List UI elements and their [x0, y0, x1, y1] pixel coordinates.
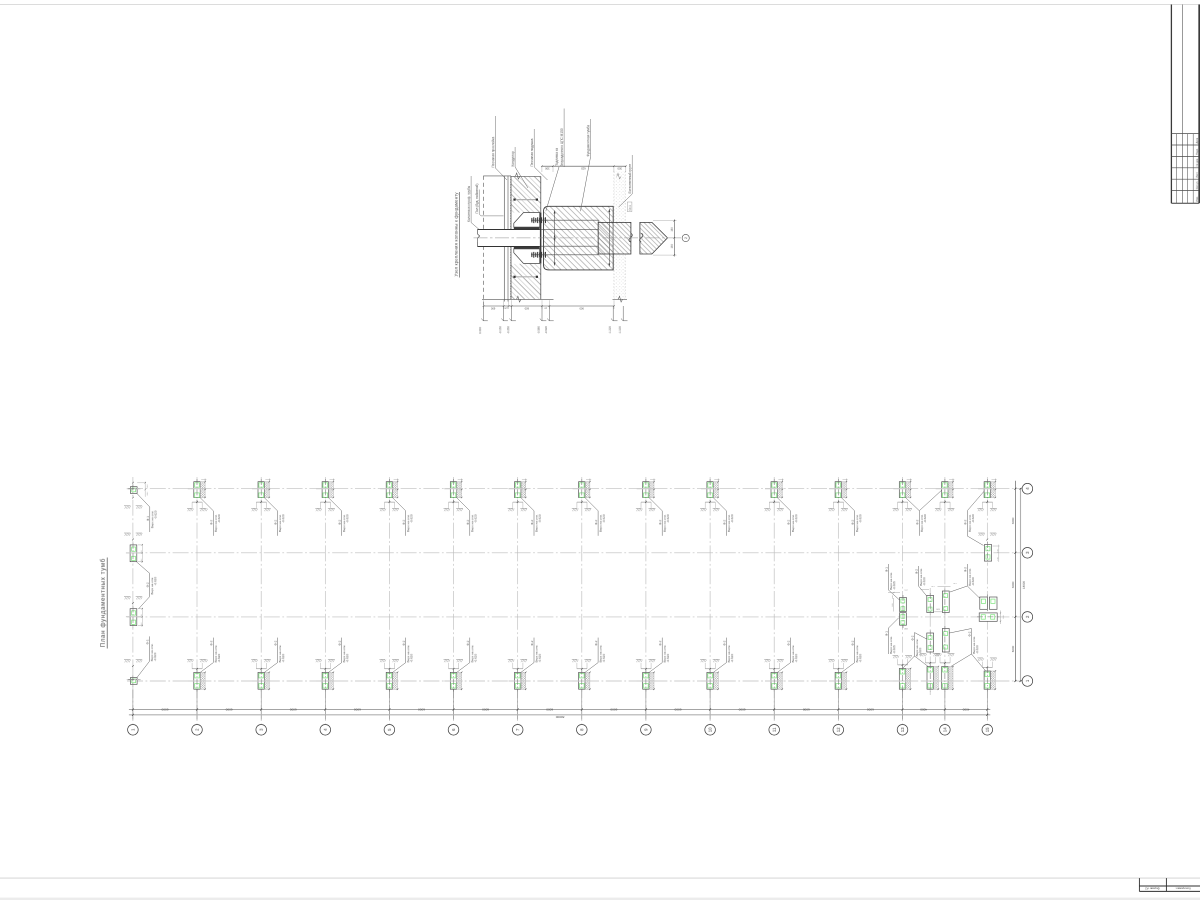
svg-text:6000: 6000: [289, 708, 296, 712]
svg-text:360: 360: [147, 491, 149, 495]
svg-text:Ф-2: Ф-2: [274, 520, 278, 525]
svg-text:Ф-2: Ф-2: [968, 631, 972, 636]
svg-text:№ док.: № док.: [1196, 158, 1199, 167]
svg-text:Дата: Дата: [1195, 137, 1199, 143]
svg-text:18000: 18000: [1022, 581, 1026, 589]
svg-text:4: 4: [1025, 487, 1030, 490]
svg-text:Ф-2: Ф-2: [851, 640, 855, 645]
svg-text:Ф-2: Ф-2: [722, 520, 726, 525]
svg-text:8: 8: [579, 728, 584, 731]
svg-text:Ф-2: Ф-2: [911, 635, 915, 640]
svg-text:4: 4: [323, 728, 328, 731]
svg-text:-0.620: -0.620: [666, 654, 670, 663]
svg-text:-0.620: -0.620: [474, 514, 478, 523]
svg-text:11: 11: [772, 727, 777, 732]
svg-text:300: 300: [545, 167, 550, 171]
svg-text:50: 50: [544, 307, 547, 309]
svg-text:-0.620: -0.620: [409, 514, 413, 523]
svg-text:3: 3: [1025, 551, 1030, 554]
svg-text:Ф-2: Ф-2: [594, 640, 598, 645]
svg-text:Песчаная подушка: Песчаная подушка: [530, 138, 534, 166]
svg-text:-0.620: -0.620: [971, 514, 975, 523]
svg-text:-0.620: -0.620: [281, 514, 285, 523]
svg-text:Фундаментная тумба: Фундаментная тумба: [586, 125, 590, 157]
svg-text:-0.605: -0.605: [892, 581, 896, 590]
svg-text:6000: 6000: [1011, 645, 1015, 652]
svg-text:-0.620: -0.620: [602, 654, 606, 663]
svg-text:280: 280: [903, 627, 907, 629]
svg-text:Подливка из: Подливка из: [555, 147, 559, 166]
svg-text:500: 500: [935, 608, 939, 610]
svg-text:Колонна из проф. трубы: Колонна из проф. трубы: [467, 185, 471, 222]
svg-text:Ф-2: Ф-2: [146, 582, 150, 587]
svg-text:6000: 6000: [1011, 581, 1015, 588]
svg-text:6000: 6000: [418, 708, 425, 712]
svg-text:6000: 6000: [803, 708, 810, 712]
svg-text:Ф-2: Ф-2: [338, 520, 342, 525]
svg-text:Ф-1: Ф-1: [146, 516, 150, 521]
svg-text:4000: 4000: [962, 708, 969, 712]
svg-text:6000: 6000: [354, 708, 361, 712]
svg-text:12: 12: [836, 727, 841, 732]
svg-text:-1.100: -1.100: [618, 326, 622, 334]
svg-text:10: 10: [708, 727, 713, 732]
svg-text:Ф-2: Ф-2: [338, 640, 342, 645]
svg-text:150: 150: [670, 227, 674, 232]
svg-text:Кондуктор: Кондуктор: [511, 151, 515, 166]
svg-text:-0.620: -0.620: [858, 654, 862, 663]
svg-text:1: 1: [1025, 679, 1030, 682]
svg-text:Копировал:: Копировал:: [1175, 886, 1190, 890]
svg-text:Формат А2: Формат А2: [1145, 886, 1160, 890]
svg-text:Ф-2: Ф-2: [530, 520, 534, 525]
svg-text:-0.620: -0.620: [409, 654, 413, 663]
svg-text:14: 14: [942, 727, 947, 732]
svg-text:Ф-2: Ф-2: [466, 520, 470, 525]
svg-text:Узел крепления колонны к фунда: Узел крепления колонны к фундаменту: [454, 192, 459, 277]
svg-text:-0.620: -0.620: [971, 577, 975, 586]
svg-text:6000: 6000: [1011, 517, 1015, 524]
svg-text:Ф-2: Ф-2: [787, 640, 791, 645]
svg-text:900: 900: [903, 588, 907, 590]
svg-text:Ф-2: Ф-2: [402, 520, 406, 525]
svg-text:Подп.: Подп.: [1195, 148, 1199, 155]
svg-text:Ф-2: Ф-2: [594, 520, 598, 525]
svg-text:13: 13: [900, 727, 905, 732]
svg-text:7: 7: [515, 728, 520, 731]
svg-text:-0.620: -0.620: [345, 654, 349, 663]
svg-text:Ф-2: Ф-2: [530, 640, 534, 645]
svg-text:Ф-2: Ф-2: [963, 519, 967, 524]
svg-text:2: 2: [195, 728, 200, 731]
svg-text:-0.580: -0.580: [537, 326, 541, 334]
svg-text:150: 150: [670, 244, 674, 249]
svg-text:500: 500: [1003, 614, 1005, 618]
svg-text:6000: 6000: [738, 708, 745, 712]
svg-text:Ф-1: Ф-1: [145, 639, 149, 644]
svg-text:Ф-2: Ф-2: [209, 640, 213, 645]
svg-text:2: 2: [1025, 615, 1030, 618]
svg-text:150: 150: [503, 307, 508, 309]
svg-text:6000: 6000: [225, 708, 232, 712]
svg-text:Ф-1: Ф-1: [885, 567, 889, 572]
svg-text:Ф-2: Ф-2: [915, 519, 919, 524]
svg-text:600: 600: [524, 307, 529, 311]
svg-text:750: 750: [952, 582, 956, 584]
svg-text:-0.620: -0.620: [153, 577, 157, 586]
svg-text:Песчаная прослойка: Песчаная прослойка: [491, 137, 495, 168]
svg-text:-0.620: -0.620: [345, 514, 349, 523]
svg-text:300: 300: [617, 167, 622, 171]
svg-text:Ос-1: Ос-1: [629, 205, 632, 211]
svg-text:Ф-2: Ф-2: [787, 520, 791, 525]
svg-text:0.000: 0.000: [478, 327, 482, 334]
svg-text:-0.620: -0.620: [544, 326, 548, 334]
svg-text:-0.620: -0.620: [281, 654, 285, 663]
svg-text:-0.250: -0.250: [506, 326, 510, 334]
svg-text:-0.620: -0.620: [922, 577, 926, 586]
svg-text:Ф-2: Ф-2: [722, 640, 726, 645]
svg-text:3: 3: [259, 728, 264, 731]
svg-text:600: 600: [490, 307, 495, 311]
svg-text:-0.620: -0.620: [730, 514, 734, 523]
svg-text:Пол (буд. набивной): Пол (буд. набивной): [475, 184, 479, 214]
svg-text:4000: 4000: [920, 708, 927, 712]
svg-text:6000: 6000: [674, 708, 681, 712]
svg-text:Изм.: Изм.: [1195, 196, 1199, 202]
svg-text:6: 6: [451, 728, 456, 731]
svg-text:-0.150: -0.150: [498, 326, 502, 334]
svg-text:-0.620: -0.620: [602, 514, 606, 523]
svg-text:Ф-2: Ф-2: [851, 520, 855, 525]
svg-text:2: 2: [684, 237, 688, 239]
svg-text:15: 15: [985, 727, 990, 732]
svg-text:6000: 6000: [610, 708, 617, 712]
svg-text:6000: 6000: [482, 708, 489, 712]
svg-text:100: 100: [147, 484, 149, 488]
svg-text:-0.620: -0.620: [538, 514, 542, 523]
svg-text:-0.620: -0.620: [730, 654, 734, 663]
svg-text:Ф-2: Ф-2: [466, 640, 470, 645]
svg-text:-0.620: -0.620: [923, 514, 927, 523]
svg-text:Ф-2: Ф-2: [963, 567, 967, 572]
svg-text:1: 1: [130, 728, 135, 731]
svg-text:-0.620: -0.620: [858, 514, 862, 523]
svg-text:-0.620: -0.620: [538, 654, 542, 663]
svg-text:-0.620: -0.620: [794, 514, 798, 523]
svg-text:6000: 6000: [867, 708, 874, 712]
svg-text:6000: 6000: [161, 708, 168, 712]
svg-text:-1.220: -1.220: [608, 326, 612, 334]
svg-text:-0.620: -0.620: [153, 652, 157, 661]
svg-text:-0.620: -0.620: [154, 510, 158, 519]
svg-text:-0.620: -0.620: [217, 514, 221, 523]
svg-text:-0.620: -0.620: [474, 654, 478, 663]
svg-text:Кол.уч.: Кол.уч.: [1195, 180, 1199, 189]
svg-text:-0.620: -0.620: [975, 645, 979, 654]
svg-text:750: 750: [930, 585, 934, 587]
svg-text:-0.620: -0.620: [794, 654, 798, 663]
svg-text:Ф-2: Ф-2: [274, 640, 278, 645]
svg-text:80000: 80000: [556, 715, 565, 719]
svg-text:Естественный грунт: Естественный грунт: [628, 163, 632, 193]
svg-text:Ф-2: Ф-2: [209, 520, 213, 525]
svg-text:-0.605: -0.605: [892, 645, 896, 654]
svg-text:6000: 6000: [546, 708, 553, 712]
svg-text:625: 625: [581, 167, 586, 171]
svg-text:Ф-2: Ф-2: [915, 569, 919, 574]
svg-text:План фундаментных тумб: План фундаментных тумб: [100, 558, 107, 647]
svg-text:900: 900: [579, 307, 584, 311]
svg-text:Ф-2: Ф-2: [402, 640, 406, 645]
svg-text:9: 9: [643, 728, 648, 731]
svg-text:Ф-1: Ф-1: [885, 631, 889, 636]
svg-text:Ф-2: Ф-2: [658, 520, 662, 525]
svg-text:-0.620: -0.620: [217, 654, 221, 663]
svg-text:Лист: Лист: [1195, 171, 1199, 177]
svg-text:Ф-2: Ф-2: [658, 640, 662, 645]
svg-text:5: 5: [387, 728, 392, 731]
svg-text:безусадочного ЦПС М150: безусадочного ЦПС М150: [560, 128, 564, 166]
svg-text:-0.620: -0.620: [666, 514, 670, 523]
